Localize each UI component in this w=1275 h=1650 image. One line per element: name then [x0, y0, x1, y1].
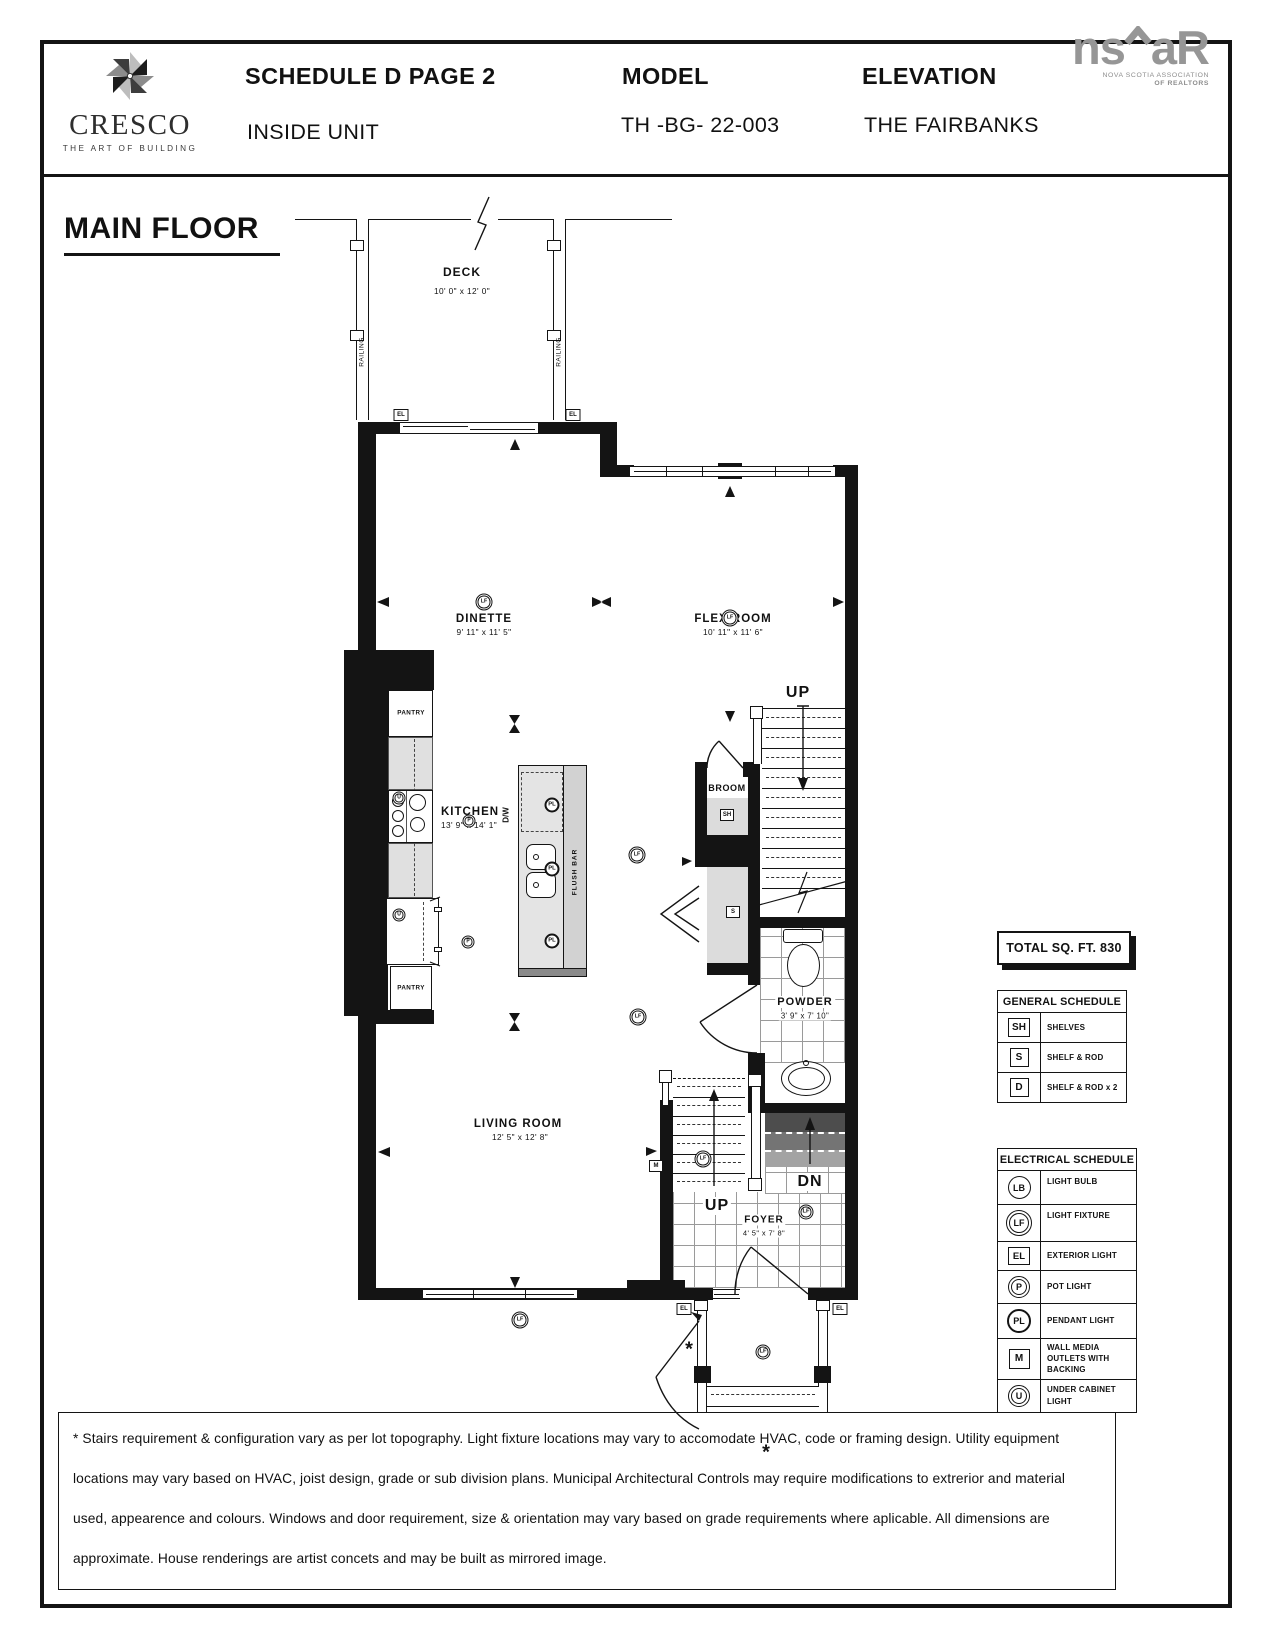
legend-row: P POT LIGHT — [998, 1270, 1136, 1303]
shelves-icon: SH — [1008, 1018, 1030, 1037]
model-label: MODEL — [622, 63, 709, 90]
total-sqft-box: TOTAL SQ. FT. 830 — [997, 931, 1131, 965]
pot-light-icon: P — [1008, 1276, 1030, 1298]
shelves-icon: SH — [720, 809, 734, 821]
stairs-down-label: DN — [795, 1173, 824, 1191]
toilet-bowl — [787, 944, 820, 987]
nsar-text-left: ns — [1072, 26, 1125, 71]
railing-post — [694, 1300, 708, 1311]
railing-post — [659, 1070, 672, 1083]
pendant-light-icon: PL — [545, 862, 560, 877]
wall-party — [344, 650, 388, 1016]
wall-front-right — [808, 1288, 858, 1300]
under-cabinet-light-icon: U — [1008, 1385, 1030, 1407]
kitchen-counter-upper — [388, 737, 433, 790]
stairs-down-tread — [765, 1132, 845, 1150]
wall-bottom-corner — [627, 1280, 685, 1300]
wall-top-left — [358, 422, 404, 434]
railing-label-left: RAILING — [359, 337, 366, 367]
porch-post — [694, 1366, 711, 1383]
doc-subtitle: INSIDE UNIT — [247, 120, 379, 145]
wall-media-outlet-icon: M — [1009, 1349, 1030, 1369]
brand-block: CRESCO THE ART OF BUILDING — [54, 48, 206, 153]
living-room-label: LIVING ROOM — [474, 1118, 562, 1130]
light-fixture-icon: LF — [799, 1205, 814, 1220]
pantry-lower-label: PANTRY — [397, 985, 425, 992]
shelf-rod-icon: S — [1010, 1048, 1029, 1067]
nsar-house-icon — [1124, 26, 1152, 62]
foyer-floor — [673, 1192, 845, 1288]
exterior-light-icon: EL — [833, 1303, 848, 1315]
stairs-down-tread — [765, 1150, 845, 1167]
stairs-foyer-up — [673, 1078, 745, 1192]
powder-label: POWDER — [775, 996, 835, 1008]
legend-row: LB LIGHT BULB — [998, 1170, 1136, 1204]
pendant-light-icon: PL — [1007, 1309, 1031, 1333]
light-fixture-icon: LF — [722, 610, 739, 627]
disclaimer-box: * Stairs requirement & configuration var… — [58, 1412, 1116, 1590]
stair-railing — [662, 1083, 669, 1105]
model-value: TH -BG- 22-003 — [621, 113, 780, 138]
exterior-light-icon: EL — [566, 409, 581, 421]
doc-title: SCHEDULE D PAGE 2 — [245, 63, 496, 90]
pendant-light-icon: PL — [545, 798, 560, 813]
light-fixture-icon: LF — [630, 1009, 647, 1026]
railing-post — [816, 1300, 830, 1311]
railing-post — [750, 706, 763, 719]
property-line — [498, 219, 672, 220]
deck-label: DECK — [443, 265, 481, 279]
light-fixture-icon: LF — [512, 1312, 529, 1329]
page-title: MAIN FLOOR — [64, 212, 280, 256]
disclaimer-text: * Stairs requirement & configuration var… — [73, 1431, 1065, 1566]
header-divider — [40, 174, 1232, 177]
dinette-dims: 9' 11" x 11' 5" — [457, 627, 512, 637]
legend-row: PL PENDANT LIGHT — [998, 1303, 1136, 1338]
railing-post — [547, 240, 561, 251]
living-window — [423, 1289, 577, 1299]
powder-dims: 3' 9" x 7' 10" — [779, 1012, 831, 1021]
dinette-label: DINETTE — [456, 613, 512, 625]
flex-room-dims: 10' 11" x 11' 6" — [703, 627, 763, 637]
toilet-tank — [783, 929, 823, 943]
patio-door — [400, 422, 538, 434]
dishwasher-label: D/W — [502, 807, 511, 823]
railing-post — [748, 1178, 762, 1191]
broom-label: BROOM — [708, 783, 746, 793]
elevation-value: THE FAIRBANKS — [864, 113, 1039, 138]
general-schedule: GENERAL SCHEDULE SH SHELVES S SHELF & RO… — [997, 990, 1127, 1103]
cresco-pinwheel-icon — [105, 48, 155, 102]
electrical-schedule-title: ELECTRICAL SCHEDULE — [998, 1149, 1136, 1170]
light-bulb-icon: LB — [1008, 1176, 1031, 1199]
pendant-light-icon: PL — [545, 934, 560, 949]
foyer-dims: 4' 5" x 7' 8" — [741, 1229, 787, 1238]
living-room-dims: 12' 5" x 12' 8" — [492, 1132, 548, 1142]
stairs-upper — [762, 708, 845, 889]
legend-row: M WALL MEDIA OUTLETS WITH BACKING — [998, 1338, 1136, 1379]
floor-plan-page: CRESCO THE ART OF BUILDING SCHEDULE D PA… — [0, 0, 1275, 1650]
exterior-light-icon: EL — [394, 409, 409, 421]
light-fixture-icon: LF — [1006, 1210, 1032, 1236]
light-fixture-icon: LF — [476, 594, 493, 611]
foyer-up-label: UP — [703, 1197, 731, 1215]
under-cabinet-light-icon: U — [393, 792, 406, 805]
wall-powder-top — [760, 917, 845, 928]
front-sidelite — [713, 1289, 740, 1299]
railing-label-right: RAILING — [556, 337, 563, 367]
general-schedule-title: GENERAL SCHEDULE — [998, 991, 1126, 1012]
nsar-text-right: aR — [1151, 26, 1209, 71]
total-sqft-label: TOTAL SQ. FT. 830 — [1006, 941, 1122, 955]
porch-post — [814, 1366, 831, 1383]
wall-foyer-divider — [660, 1100, 673, 1300]
pantry-upper-label: PANTRY — [397, 710, 425, 717]
light-fixture-icon: LF — [756, 1345, 771, 1360]
under-cabinet-light-icon: U — [393, 909, 406, 922]
light-fixture-icon: LF — [629, 847, 646, 864]
pot-light-icon: P — [463, 815, 476, 828]
brand-name: CRESCO — [54, 109, 206, 142]
wall-right — [845, 465, 858, 1300]
stair-railing — [751, 1084, 761, 1188]
legend-row: LF LIGHT FIXTURE — [998, 1204, 1136, 1241]
elevation-label: ELEVATION — [862, 63, 997, 90]
legend-row: SH SHELVES — [998, 1012, 1126, 1042]
nsar-logo: nsaR NOVA SCOTIA ASSOCIATION OF REALTORS — [1072, 26, 1209, 87]
exterior-light-icon: EL — [677, 1303, 692, 1315]
shelf-rod-icon: S — [726, 906, 740, 918]
wall-powder-left — [748, 917, 760, 985]
kitchen-counter-lower — [388, 843, 433, 898]
legend-row: EL EXTERIOR LIGHT — [998, 1241, 1136, 1270]
railing-post — [350, 240, 364, 251]
railing-post — [748, 1074, 762, 1087]
powder-sink-basin — [788, 1067, 825, 1090]
brand-tagline: THE ART OF BUILDING — [54, 144, 206, 153]
legend-row: S SHELF & ROD — [998, 1042, 1126, 1072]
wall-broom-bottom — [695, 835, 760, 867]
light-fixture-icon: LF — [695, 1151, 712, 1168]
pot-light-icon: P — [462, 936, 475, 949]
wall-nook-bottom — [760, 1103, 845, 1113]
legend-row: D SHELF & ROD x 2 — [998, 1072, 1126, 1102]
stairs-down-tread — [765, 1113, 845, 1132]
wall-kitchen-cap-bottom — [358, 1010, 434, 1024]
wall-media-outlet-icon: M — [649, 1160, 663, 1172]
fridge — [386, 898, 439, 965]
legend-row: U UNDER CABINET LIGHT — [998, 1379, 1136, 1412]
shelf-rod-x2-icon: D — [1010, 1078, 1029, 1097]
stairs-note-asterisk: * — [685, 1339, 693, 1362]
electrical-schedule: ELECTRICAL SCHEDULE LB LIGHT BULB LF LIG… — [997, 1148, 1137, 1413]
flex-window — [630, 466, 835, 477]
nsar-subtext-2: OF REALTORS — [1072, 80, 1209, 87]
property-line — [295, 219, 471, 220]
flush-bar-label: FLUSH BAR — [572, 849, 579, 896]
stairs-up-label: UP — [786, 684, 810, 702]
exterior-light-icon: EL — [1008, 1247, 1030, 1265]
stairs-note-asterisk: * — [762, 1442, 770, 1465]
deck-dims: 10' 0" x 12' 0" — [434, 286, 490, 296]
foyer-label: FOYER — [742, 1215, 785, 1226]
